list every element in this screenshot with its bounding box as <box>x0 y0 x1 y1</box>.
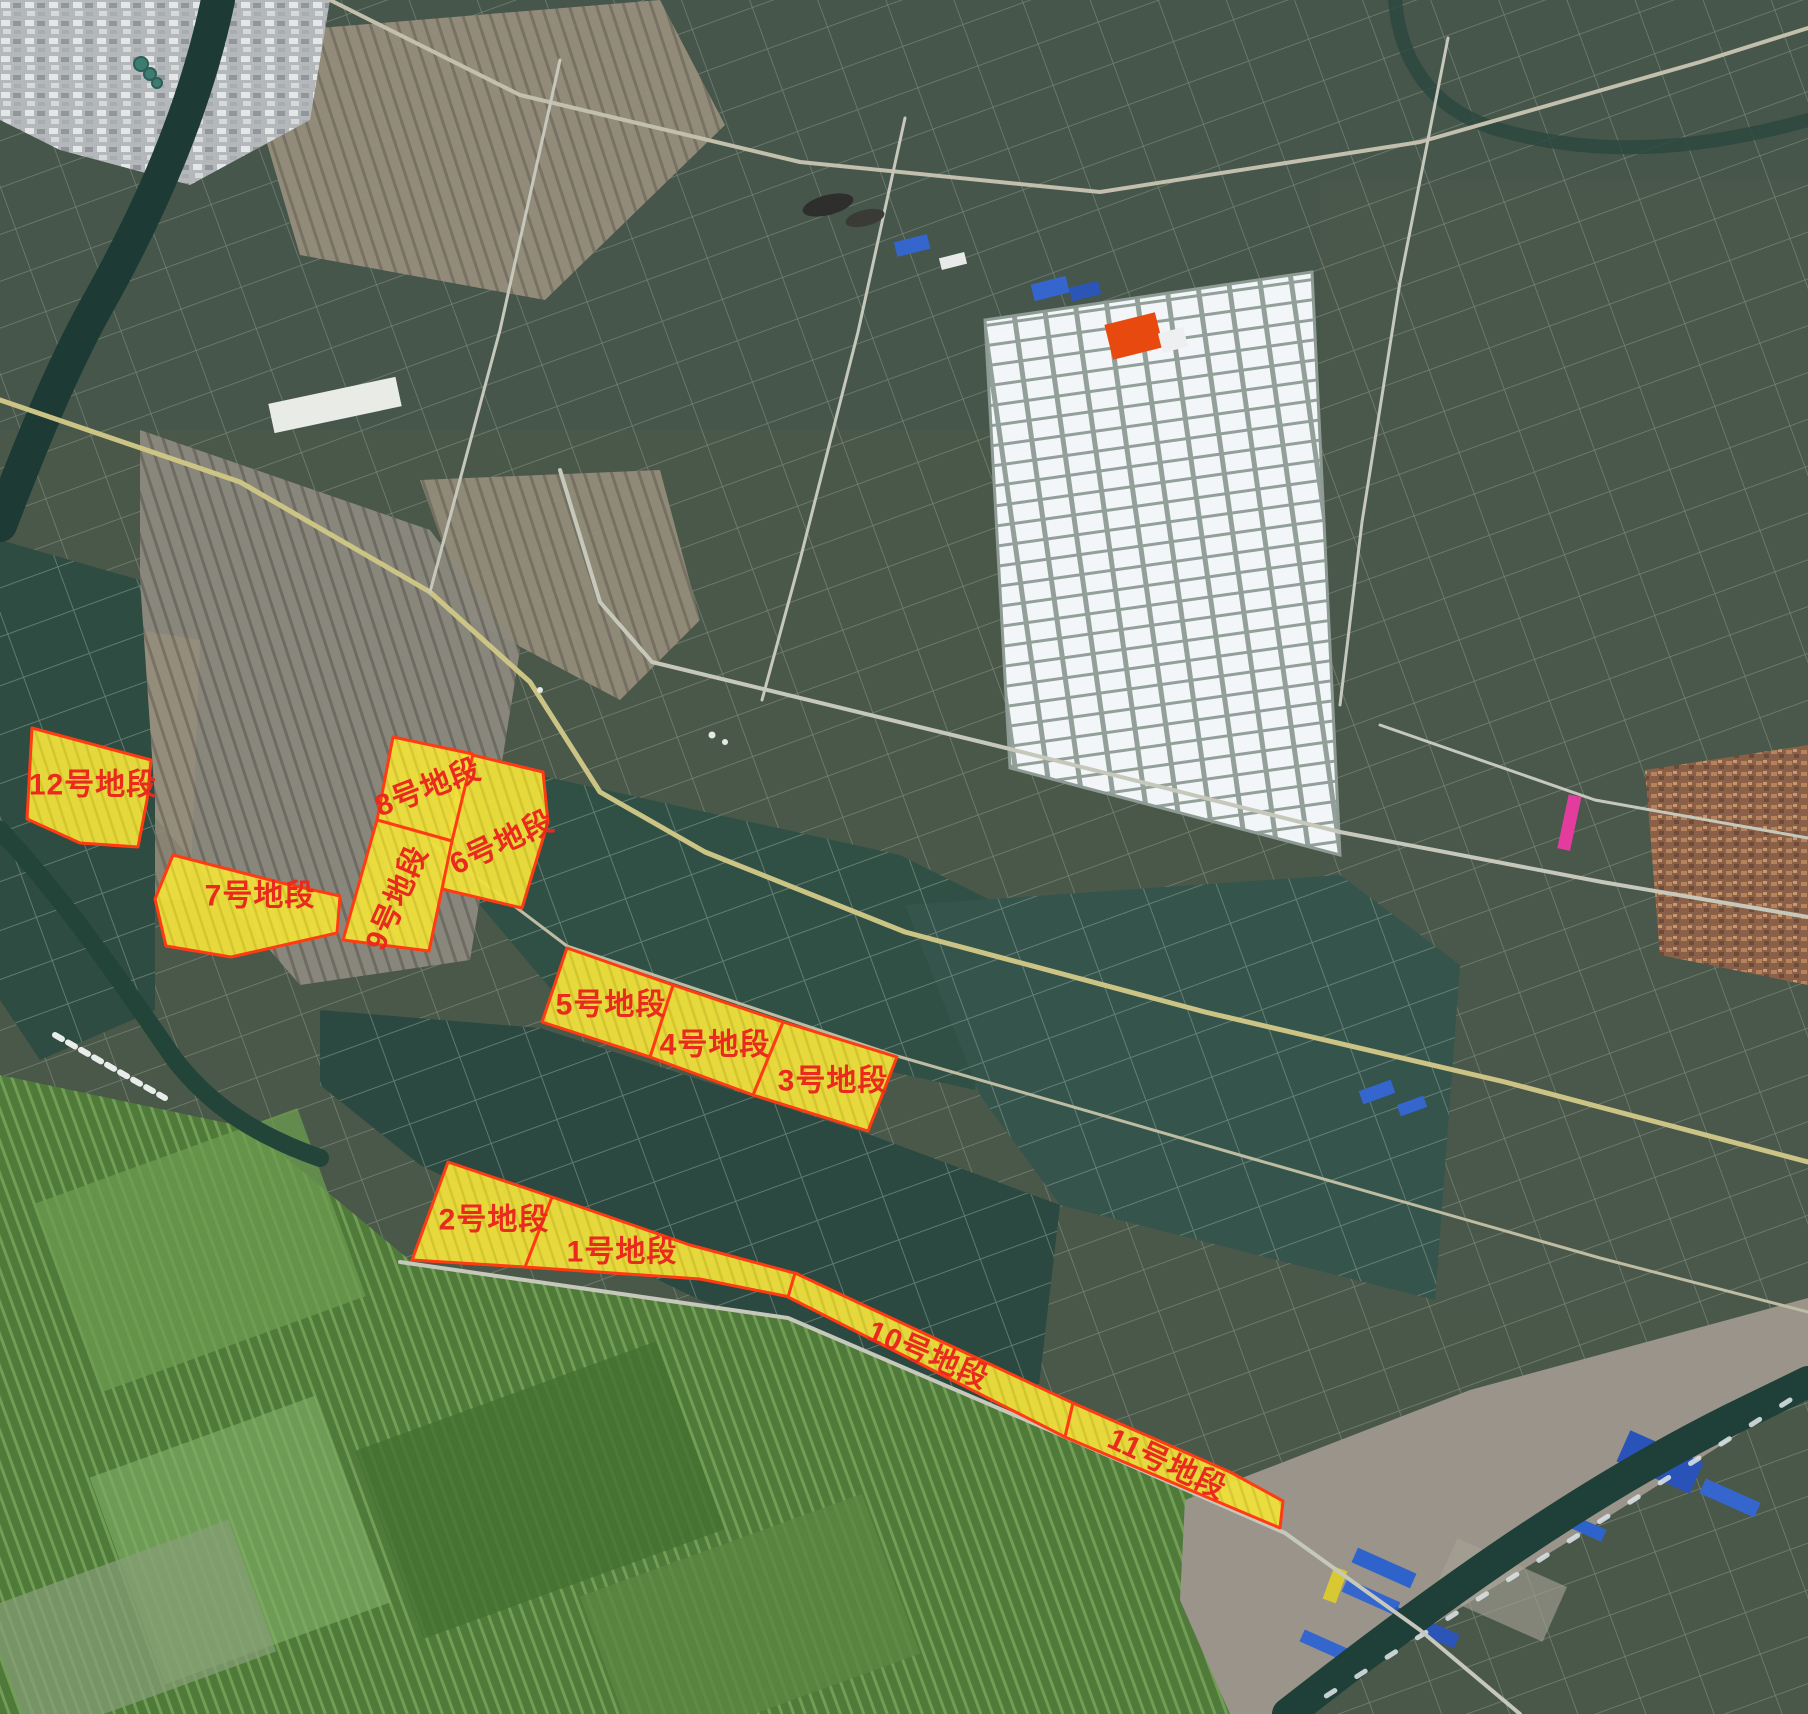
parcel-label-1: 1号地段 <box>567 1235 678 1269</box>
satellite-terrain <box>0 0 1808 1714</box>
satellite-map: 1号地段2号地段3号地段4号地段5号地段6号地段7号地段8号地段9号地段10号地… <box>0 0 1808 1714</box>
greenhouse-block <box>985 272 1340 855</box>
parcel-label-2: 2号地段 <box>439 1203 550 1237</box>
parcel-label-4: 4号地段 <box>660 1028 771 1062</box>
parcel-label-3: 3号地段 <box>778 1064 889 1098</box>
parcel-label-5: 5号地段 <box>556 988 667 1022</box>
parcel-label-12: 12号地段 <box>29 768 157 802</box>
town-east <box>1645 745 1808 985</box>
parcel-label-7: 7号地段 <box>205 879 316 913</box>
